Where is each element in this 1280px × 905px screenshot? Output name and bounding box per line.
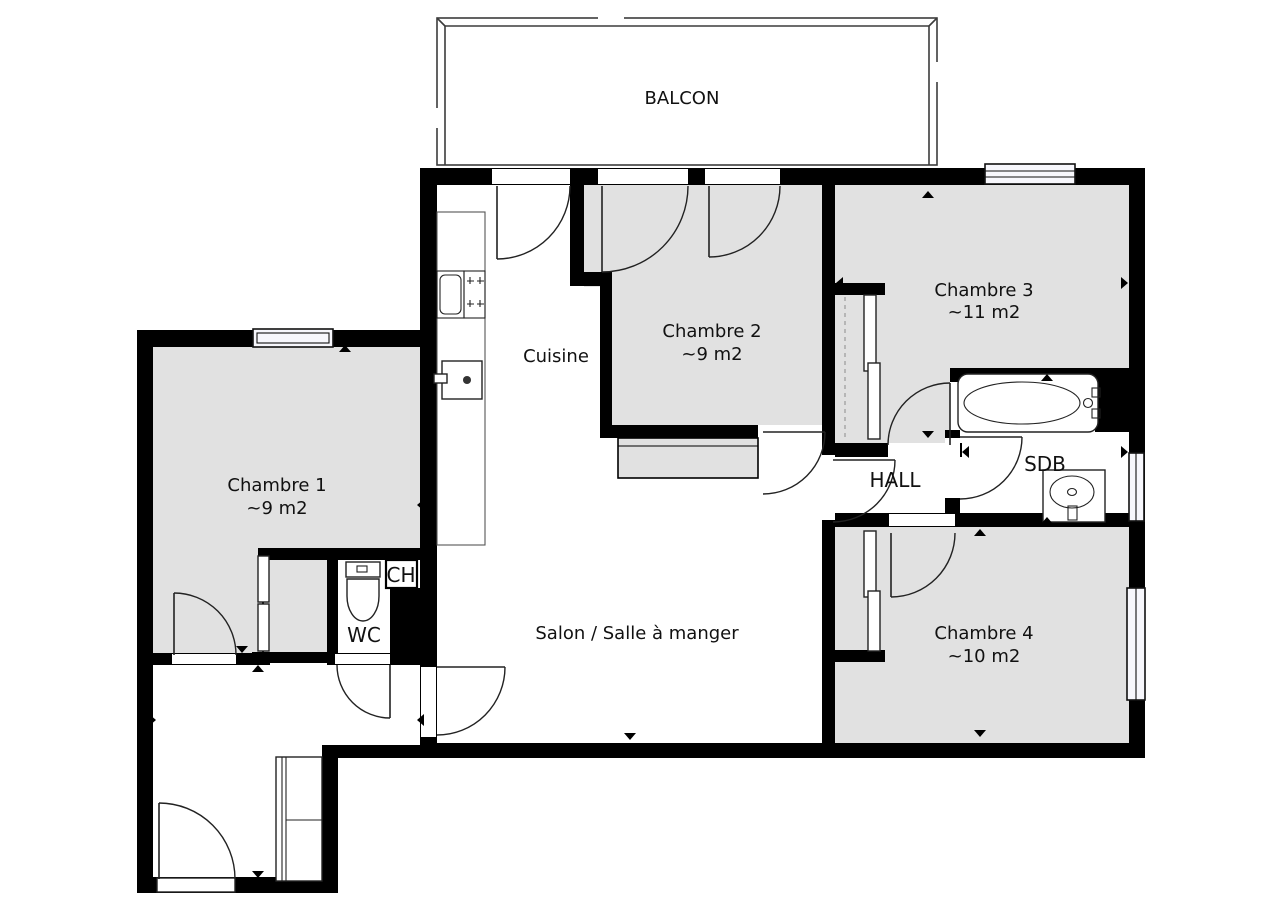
room-label-chambre-4: Chambre 4 [934, 623, 1033, 644]
door-wc [337, 665, 390, 718]
door-entrance [157, 803, 235, 892]
door-sdb [960, 437, 1022, 499]
room-label-salon: Salon / Salle à manger [535, 623, 739, 644]
door-cuisine-balcon [497, 186, 570, 259]
room-label-balcon: BALCON [645, 88, 720, 109]
sink-vanity-fixture [1043, 470, 1105, 522]
duct-shaft [390, 588, 437, 657]
door-entry-salon [437, 667, 505, 735]
room-chambre-2 [584, 185, 822, 425]
room-area-chambre-3: ~11 m2 [948, 302, 1021, 323]
floor-plan-page: BALCON Chambre 1 ~9 m2 Chambre 2 ~9 m2 C… [0, 0, 1280, 905]
room-label-chambre-2: Chambre 2 [662, 321, 761, 342]
window-chambre-4 [1127, 588, 1145, 700]
bathtub-fixture [958, 374, 1100, 432]
room-area-chambre-2: ~9 m2 [681, 344, 742, 365]
room-label-chambre-3: Chambre 3 [934, 280, 1033, 301]
room-label-chambre-1: Chambre 1 [227, 475, 326, 496]
toilet-fixture [346, 562, 380, 621]
entry-wardrobe [276, 757, 322, 881]
room-label-cuisine: Cuisine [523, 346, 589, 367]
floor-plan: BALCON Chambre 1 ~9 m2 Chambre 2 ~9 m2 C… [0, 0, 1280, 905]
window-chambre-1 [253, 329, 333, 347]
room-label-sdb: SDB [1024, 452, 1066, 476]
room-label-wc: WC [347, 623, 381, 647]
radiator-sdb [1129, 453, 1144, 521]
room-area-chambre-4: ~10 m2 [948, 646, 1021, 667]
window-chambre-3 [985, 164, 1075, 184]
vestibule-door-panels [258, 553, 269, 655]
door-chambre-2 [763, 432, 825, 494]
room-label-ch: CH [386, 563, 415, 587]
room-label-hall: HALL [869, 468, 921, 492]
closet-chambre-2 [618, 438, 758, 478]
room-area-chambre-1: ~9 m2 [246, 498, 307, 519]
